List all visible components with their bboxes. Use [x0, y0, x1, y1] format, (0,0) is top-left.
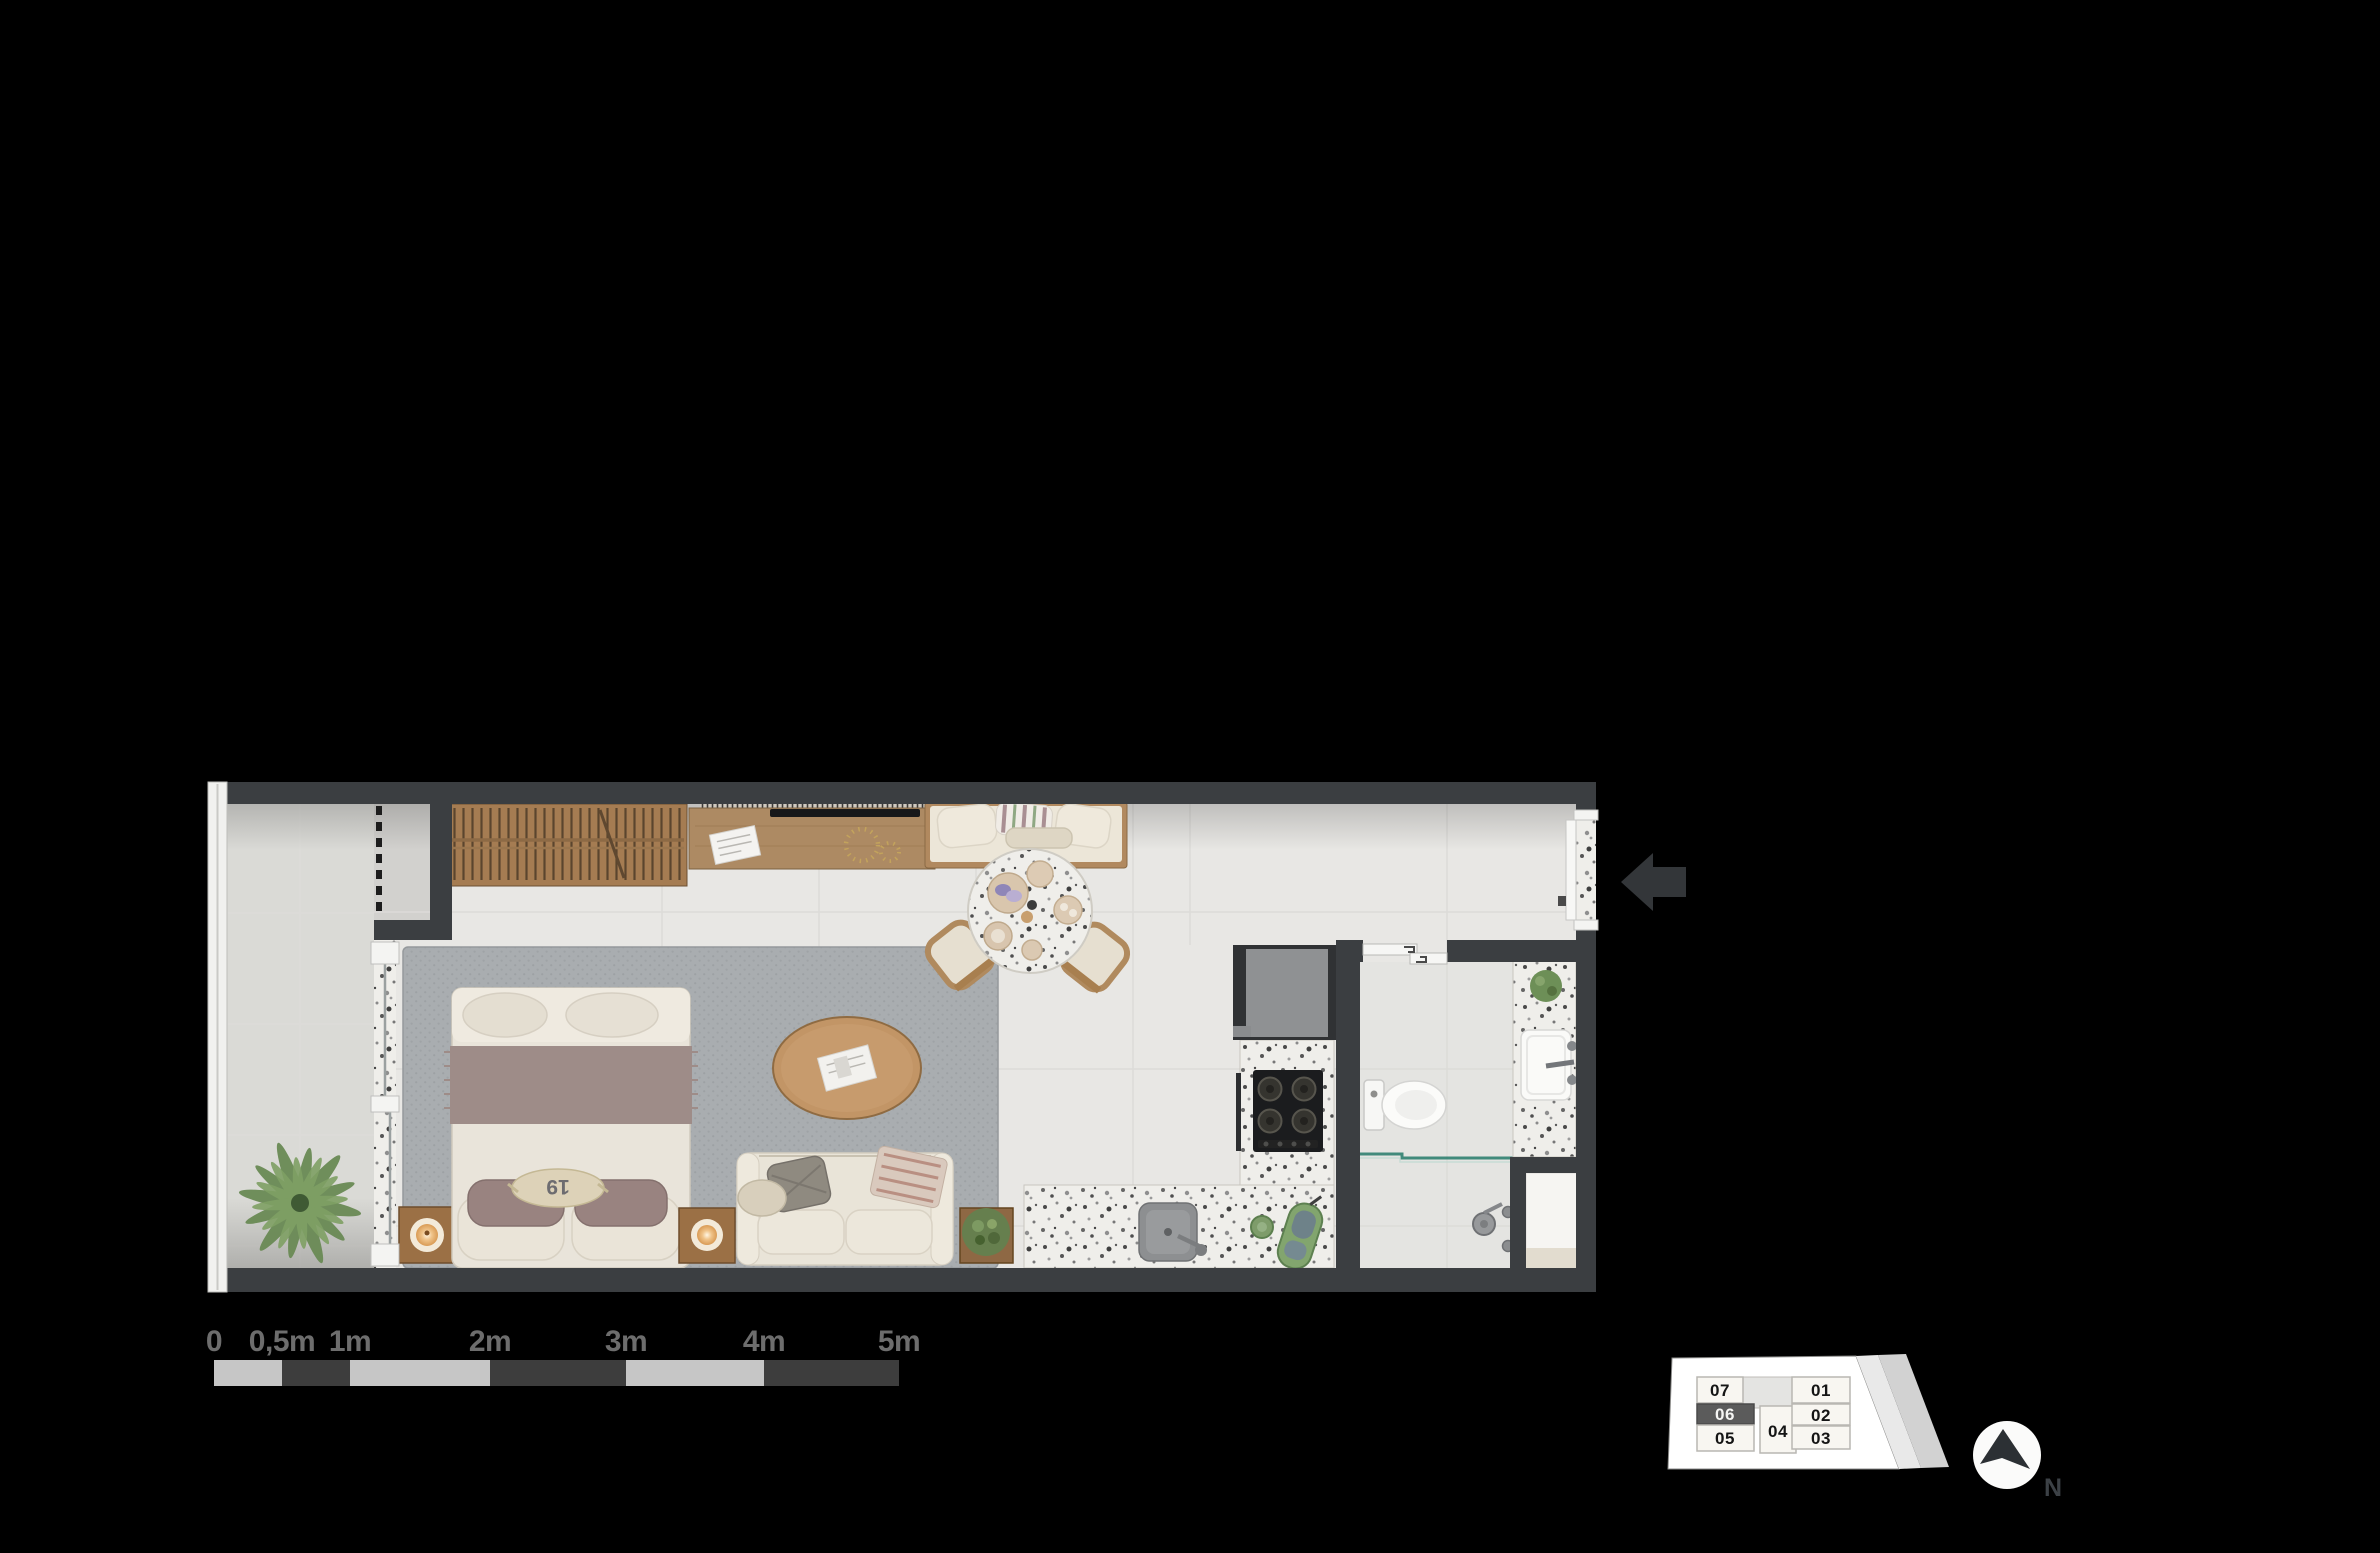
tv: [770, 809, 920, 817]
floor-plan: 19: [208, 782, 1598, 1292]
unit-label-04: 04: [1768, 1422, 1788, 1441]
unit-label-03: 03: [1811, 1429, 1831, 1448]
bed: 19: [444, 988, 698, 1268]
sofa: [737, 1145, 953, 1265]
shower-niche: [1526, 1173, 1583, 1268]
wall-kitchen-bath: [1336, 940, 1360, 1268]
fridge: [1233, 945, 1343, 1040]
entry-arrow-icon: [1621, 853, 1686, 911]
unit-label-06: 06: [1715, 1405, 1735, 1424]
door-handle-icon: [1558, 896, 1566, 906]
toilet: [1364, 1080, 1446, 1130]
scale-bar-segments: [214, 1360, 899, 1386]
wall-bottom: [227, 1268, 1596, 1292]
floor-plan-sheet: 19: [0, 0, 2380, 1553]
cooktop: [1253, 1070, 1323, 1152]
scale-label-0: 0: [206, 1325, 222, 1358]
balcony-railing: [208, 782, 227, 1292]
unit-label-02: 02: [1811, 1406, 1831, 1425]
bench-lumbar-pillow: [1006, 828, 1072, 848]
door-leaf: [1566, 820, 1576, 920]
north-label: N: [2044, 1474, 2062, 1502]
tv-console: [689, 801, 935, 869]
sofa-pillow-round: [738, 1180, 786, 1216]
key-plan: 07 06 05 04 01 02 03: [1668, 1354, 1949, 1469]
scale-label-05m: 0,5m: [249, 1325, 315, 1358]
unit-label-07: 07: [1710, 1381, 1730, 1400]
pillow-monogram-text: 19: [546, 1175, 569, 1198]
scale-label-3m: 3m: [605, 1325, 647, 1358]
unit-label-05: 05: [1715, 1429, 1735, 1448]
plant-icon: [962, 1208, 1010, 1256]
scale-label-5m: 5m: [878, 1325, 920, 1358]
oven-handle: [1236, 1073, 1241, 1151]
nightstand-left: [399, 1207, 455, 1263]
scale-label-1m: 1m: [329, 1325, 371, 1358]
bed-throw: [450, 1046, 692, 1124]
coffee-table: [773, 1017, 921, 1119]
wall-bath-top: [1447, 940, 1576, 962]
clothes-rack: [449, 804, 687, 886]
bench-pillow: [936, 803, 998, 849]
entry-threshold: [1576, 818, 1596, 922]
side-table-plant: [960, 1208, 1013, 1263]
vanity: [1513, 958, 1577, 1157]
scale-label-2m: 2m: [469, 1325, 511, 1358]
side-table-candle: [679, 1208, 735, 1263]
seat-cushion: [846, 1210, 932, 1254]
balcony-sliding-door: [371, 940, 399, 1268]
unit-label-01: 01: [1811, 1381, 1831, 1400]
scale-label-4m: 4m: [743, 1325, 785, 1358]
north-compass: N: [1973, 1421, 2062, 1502]
scale-bar: 0 0,5m 1m 2m 3m 4m 5m: [206, 1325, 920, 1386]
wall-top: [227, 782, 1596, 804]
kitchen-sink: [1139, 1203, 1207, 1261]
page: 19: [0, 0, 2380, 1553]
seat-cushion: [758, 1210, 844, 1254]
wall-right: [1576, 922, 1596, 1292]
plant-icon: [1530, 970, 1562, 1002]
